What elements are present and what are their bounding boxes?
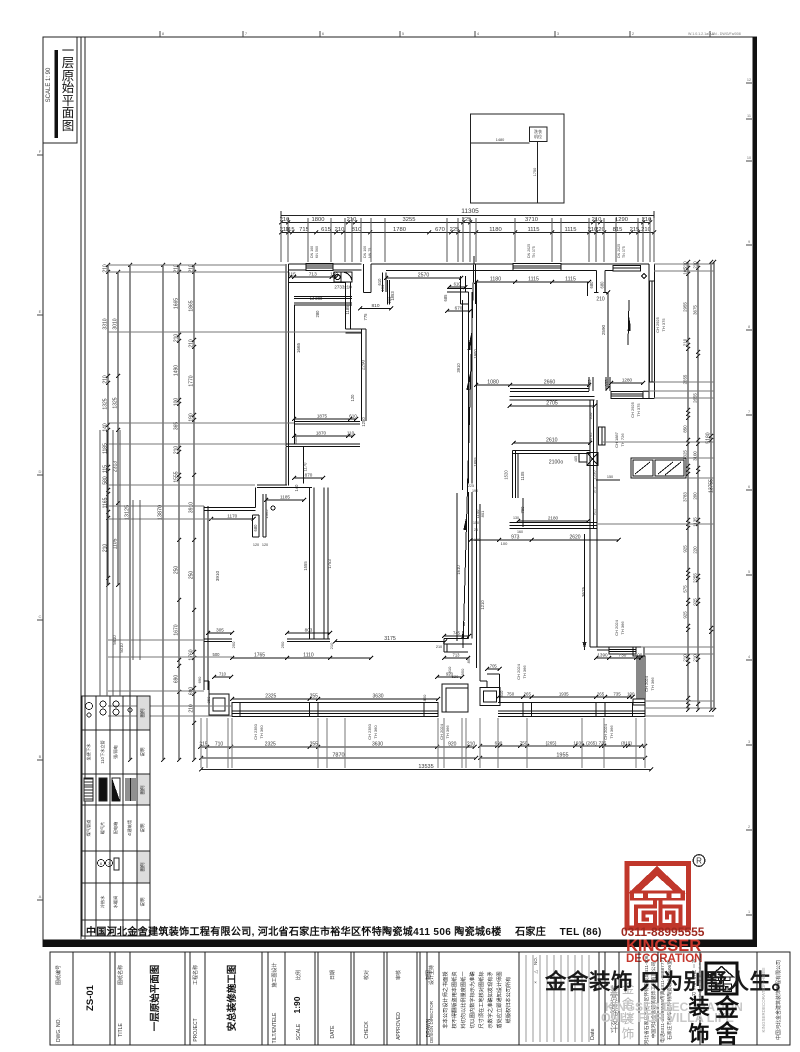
- svg-text:375: 375: [592, 486, 597, 493]
- svg-text:1110: 1110: [303, 653, 314, 659]
- svg-text:始: 始: [62, 81, 75, 95]
- svg-text:1770: 1770: [189, 375, 195, 386]
- svg-text:比例: 比例: [295, 970, 302, 980]
- svg-text:Date: Date: [590, 1028, 596, 1040]
- svg-text:280: 280: [315, 310, 320, 318]
- svg-text:615: 615: [321, 227, 331, 233]
- svg-text:210: 210: [641, 227, 651, 233]
- svg-text:SCALE 1: 90: SCALE 1: 90: [46, 67, 52, 102]
- svg-text:6: 6: [322, 31, 325, 36]
- svg-text:1665: 1665: [296, 342, 301, 353]
- svg-text:11: 11: [747, 114, 751, 118]
- svg-text:饰: 饰: [689, 1022, 710, 1046]
- svg-text:1490: 1490: [174, 365, 180, 376]
- svg-text:3175: 3175: [384, 636, 396, 642]
- svg-text:1760: 1760: [189, 649, 195, 660]
- svg-text:2180: 2180: [548, 516, 559, 521]
- svg-text:735: 735: [613, 692, 621, 697]
- svg-text:A: A: [39, 894, 42, 899]
- svg-text:TH 360: TH 360: [373, 725, 378, 739]
- svg-text:1105: 1105: [520, 471, 525, 481]
- svg-text:7: 7: [108, 861, 111, 866]
- svg-text:250: 250: [189, 571, 195, 580]
- svg-text:1610: 1610: [456, 565, 461, 575]
- svg-text:775: 775: [363, 313, 368, 321]
- svg-text:4: 4: [477, 31, 480, 36]
- svg-text:250: 250: [174, 566, 180, 575]
- svg-text:2325: 2325: [265, 742, 276, 748]
- svg-text:13535: 13535: [418, 764, 433, 770]
- svg-text:210: 210: [174, 264, 180, 273]
- svg-text:2255: 2255: [693, 573, 698, 583]
- svg-text:冷热水: 冷热水: [99, 895, 106, 908]
- svg-text:1170: 1170: [303, 462, 308, 472]
- svg-text:W.1.0.1.2.1a/AAN - DWG/Fa/008: W.1.0.1.2.1a/AAN - DWG/Fa/008: [688, 32, 741, 36]
- svg-text:1870: 1870: [316, 431, 327, 436]
- svg-text:3675: 3675: [693, 305, 698, 315]
- svg-text:715: 715: [299, 227, 309, 233]
- svg-text:210: 210: [329, 642, 334, 649]
- svg-text:1900: 1900: [473, 349, 478, 359]
- svg-text:B: B: [39, 754, 42, 759]
- svg-text:2655: 2655: [683, 374, 688, 384]
- svg-text:中国河北金舍建筑装饰工程有限公司: 中国河北金舍建筑装饰工程有限公司: [775, 960, 782, 1040]
- svg-text:1185: 1185: [345, 305, 350, 315]
- svg-text:210: 210: [693, 654, 698, 662]
- svg-text:13870: 13870: [158, 505, 164, 520]
- svg-text:纸版权归本公司所有: 纸版权归本公司所有: [504, 977, 512, 1024]
- svg-text:115: 115: [288, 272, 296, 278]
- svg-text:TH 360: TH 360: [259, 725, 264, 739]
- svg-text:1935: 1935: [573, 741, 584, 746]
- svg-text:485: 485: [574, 456, 578, 462]
- svg-text:950: 950: [460, 668, 465, 675]
- svg-text:255: 255: [310, 694, 319, 700]
- svg-text:强/弱电: 强/弱电: [112, 744, 119, 759]
- svg-text:图例: 图例: [139, 708, 146, 717]
- svg-text:△: △: [533, 969, 538, 973]
- svg-text:1753: 1753: [327, 559, 332, 569]
- svg-text:配电箱: 配电箱: [112, 822, 119, 835]
- svg-text:1325: 1325: [113, 397, 119, 408]
- svg-text:250: 250: [231, 641, 236, 648]
- svg-text:680: 680: [600, 281, 605, 289]
- svg-text:400: 400: [293, 436, 298, 444]
- svg-text:6: 6: [748, 485, 750, 489]
- svg-text:KINGSERDECORATION-HEBEI: KINGSERDECORATION-HEBEI: [761, 968, 766, 1033]
- svg-text:210: 210: [693, 261, 698, 269]
- svg-text:2: 2: [748, 825, 750, 829]
- svg-text:580: 580: [103, 476, 109, 485]
- svg-text:TILT/ENTELE: TILT/ENTELE: [272, 1012, 278, 1043]
- svg-text:1115: 1115: [528, 277, 539, 283]
- svg-text:ONLY FOR VILLA LIFE: ONLY FOR VILLA LIFE: [601, 1011, 734, 1025]
- svg-text:210: 210: [189, 704, 195, 713]
- svg-text:3100: 3100: [693, 451, 698, 461]
- svg-text:3910: 3910: [215, 570, 220, 581]
- svg-text:日期: 日期: [330, 970, 336, 980]
- svg-text:140: 140: [103, 423, 109, 432]
- svg-text:255: 255: [310, 742, 319, 748]
- svg-text:713: 713: [453, 653, 461, 658]
- svg-text:(265): (265): [586, 741, 597, 746]
- svg-text:100: 100: [501, 541, 508, 546]
- svg-text:1165: 1165: [103, 497, 109, 508]
- svg-text:APPROVED: APPROVED: [396, 1012, 402, 1040]
- svg-text:施工图设计: 施工图设计: [271, 962, 278, 987]
- svg-text:CH 1887: CH 1887: [614, 431, 619, 448]
- svg-text:3625: 3625: [581, 586, 586, 597]
- svg-text:CH 2925: CH 2925: [630, 401, 635, 418]
- svg-text:730: 730: [619, 653, 627, 658]
- svg-text:2313: 2313: [113, 461, 119, 472]
- svg-text:1080: 1080: [487, 380, 499, 386]
- svg-text:735: 735: [599, 741, 607, 746]
- svg-text:150: 150: [473, 521, 479, 525]
- svg-text:DN 100: DN 100: [363, 246, 367, 258]
- svg-text:图例: 图例: [139, 785, 146, 794]
- svg-text:220: 220: [693, 546, 698, 554]
- svg-text:1853: 1853: [390, 291, 395, 301]
- svg-text:803: 803: [305, 628, 313, 633]
- svg-text:210: 210: [335, 227, 345, 233]
- svg-text:713: 713: [309, 272, 317, 278]
- svg-text:3783: 3783: [683, 492, 688, 502]
- svg-text:100: 100: [174, 398, 180, 407]
- svg-text:210: 210: [103, 375, 109, 384]
- svg-text:10: 10: [747, 156, 751, 160]
- svg-text:尺寸须在工地核对图纸标: 尺寸须在工地核对图纸标: [477, 971, 485, 1028]
- svg-text:DN 2025: DN 2025: [617, 244, 621, 258]
- svg-text:810: 810: [352, 227, 362, 233]
- svg-text:校对: 校对: [363, 970, 370, 980]
- svg-text:115: 115: [103, 465, 109, 473]
- svg-text:非本公司设计师之书面授: 非本公司设计师之书面授: [441, 971, 449, 1028]
- svg-text:盾处应立即通知设计师图: 盾处应立即通知设计师图: [495, 971, 503, 1028]
- svg-text:1135: 1135: [693, 517, 698, 527]
- svg-text:305: 305: [216, 628, 224, 633]
- svg-text:1665: 1665: [174, 298, 180, 309]
- svg-text:1955: 1955: [556, 753, 568, 759]
- svg-text:750: 750: [507, 692, 515, 697]
- svg-text:8: 8: [162, 31, 165, 36]
- svg-text:1935: 1935: [559, 692, 569, 697]
- svg-text:切以图内数字标示为准确: 切以图内数字标示为准确: [468, 971, 476, 1028]
- svg-text:7870: 7870: [332, 753, 344, 759]
- svg-text:TH 366: TH 366: [445, 725, 450, 739]
- svg-text:610: 610: [349, 414, 357, 419]
- svg-text:R: R: [696, 857, 702, 866]
- svg-text:TH 366: TH 366: [522, 665, 527, 679]
- svg-text:3630: 3630: [372, 742, 383, 748]
- svg-text:TN 375: TN 375: [622, 246, 626, 258]
- svg-text:1115: 1115: [565, 277, 576, 283]
- svg-text:200: 200: [693, 492, 698, 500]
- svg-text:图纸名称: 图纸名称: [117, 965, 124, 985]
- svg-text:1325: 1325: [103, 398, 109, 409]
- svg-text:215: 215: [199, 742, 208, 748]
- svg-text:DWG. NO.: DWG. NO.: [56, 1018, 62, 1042]
- svg-text:1865: 1865: [189, 300, 195, 311]
- svg-text:×: ×: [533, 981, 538, 984]
- svg-text:925: 925: [693, 598, 698, 606]
- svg-text:925: 925: [683, 545, 688, 553]
- svg-text:120: 120: [350, 394, 355, 402]
- svg-text:973: 973: [511, 535, 520, 541]
- svg-text:2955: 2955: [683, 302, 688, 312]
- svg-text:745: 745: [453, 631, 461, 636]
- svg-text:1750: 1750: [533, 168, 537, 176]
- svg-text:1555: 1555: [174, 471, 180, 482]
- svg-text:DN 2025: DN 2025: [527, 244, 531, 258]
- svg-text:1210: 1210: [480, 600, 485, 610]
- svg-text:DN 160: DN 160: [310, 246, 314, 258]
- svg-text:2: 2: [632, 31, 635, 36]
- svg-text:1250: 1250: [361, 417, 366, 427]
- svg-text:TH 366: TH 366: [609, 725, 614, 739]
- svg-text:安总装修施工图: 安总装修施工图: [226, 965, 238, 1032]
- svg-text:120: 120: [253, 543, 259, 547]
- svg-text:13125: 13125: [125, 505, 131, 520]
- svg-text:4: 4: [748, 655, 750, 659]
- svg-text:2705: 2705: [546, 401, 558, 407]
- svg-text:120: 120: [262, 543, 268, 547]
- svg-text:210: 210: [467, 742, 476, 748]
- svg-text:220: 220: [595, 227, 605, 233]
- svg-text:250: 250: [280, 641, 285, 648]
- svg-text:1780: 1780: [393, 227, 406, 233]
- svg-text:2325: 2325: [265, 694, 276, 700]
- svg-text:9: 9: [748, 240, 750, 244]
- svg-text:1670: 1670: [174, 624, 180, 635]
- svg-text:1480: 1480: [496, 138, 504, 142]
- svg-text:750: 750: [520, 741, 528, 746]
- svg-text:说明: 说明: [139, 747, 146, 756]
- svg-text:示数字之准确如发现有矛: 示数字之准确如发现有矛: [486, 971, 494, 1028]
- svg-text:3910: 3910: [189, 502, 195, 513]
- svg-text:690: 690: [495, 741, 503, 746]
- svg-text:210: 210: [189, 339, 195, 348]
- svg-text:3710: 3710: [525, 217, 538, 223]
- svg-text:1115: 1115: [564, 227, 576, 233]
- svg-text:舍: 舍: [715, 1020, 740, 1048]
- svg-text:3010: 3010: [113, 318, 119, 329]
- svg-text:210: 210: [103, 544, 109, 553]
- svg-text:坐便下水: 坐便下水: [85, 743, 92, 761]
- svg-text:7: 7: [748, 410, 750, 414]
- svg-text:饰: 饰: [622, 1027, 635, 1041]
- svg-text:一层原始平面图: 一层原始平面图: [149, 965, 161, 1032]
- svg-text:210: 210: [683, 338, 688, 346]
- svg-text:110: 110: [347, 431, 355, 436]
- svg-text:7: 7: [245, 31, 248, 36]
- svg-text:670: 670: [455, 306, 463, 311]
- svg-text:210: 210: [174, 446, 180, 455]
- svg-text:1290: 1290: [615, 217, 628, 223]
- svg-text:690: 690: [174, 675, 180, 684]
- svg-text:1185: 1185: [280, 495, 290, 500]
- svg-text:DATE: DATE: [330, 1025, 336, 1039]
- svg-text:1180: 1180: [489, 227, 501, 233]
- svg-text:(265): (265): [546, 741, 557, 746]
- svg-text:CH 2925: CH 2925: [655, 316, 660, 333]
- svg-text:610: 610: [377, 278, 382, 286]
- svg-text:210: 210: [103, 264, 109, 273]
- svg-text:CHECK: CHECK: [364, 1021, 370, 1039]
- svg-text:2620: 2620: [569, 535, 580, 541]
- svg-text:5: 5: [748, 570, 750, 574]
- svg-text:130: 130: [513, 516, 519, 520]
- svg-text:575: 575: [683, 585, 688, 593]
- svg-text:CH 2024: CH 2024: [439, 723, 444, 740]
- svg-text:4t建筑墙: 4t建筑墙: [126, 820, 133, 836]
- svg-text:210: 210: [436, 645, 442, 649]
- svg-text:5: 5: [402, 31, 405, 36]
- svg-text:710: 710: [215, 742, 224, 748]
- svg-text:190: 190: [472, 489, 478, 493]
- svg-text:图纸编号: 图纸编号: [55, 965, 62, 985]
- svg-text:3910: 3910: [456, 363, 461, 373]
- svg-text:210: 210: [347, 217, 357, 223]
- svg-text:审核: 审核: [395, 970, 402, 980]
- svg-text:1855: 1855: [473, 457, 478, 467]
- svg-text:水暖阀: 水暖阀: [112, 896, 119, 909]
- svg-text:150: 150: [607, 475, 613, 479]
- svg-text:105: 105: [683, 267, 688, 275]
- svg-text:8: 8: [748, 325, 750, 329]
- svg-text:1800: 1800: [312, 217, 325, 223]
- svg-text:670: 670: [435, 227, 445, 233]
- svg-text:850: 850: [206, 696, 211, 703]
- svg-text:TITLE: TITLE: [118, 1023, 124, 1037]
- svg-text:705: 705: [490, 664, 498, 669]
- svg-text:910: 910: [499, 690, 504, 697]
- svg-text:C: C: [39, 614, 42, 619]
- svg-text:2660: 2660: [544, 380, 556, 386]
- svg-text:1555: 1555: [303, 561, 308, 571]
- svg-text:925: 925: [592, 508, 597, 515]
- svg-text:煤气管道: 煤气管道: [85, 819, 92, 837]
- svg-text:210: 210: [189, 264, 195, 273]
- svg-text:815: 815: [613, 227, 623, 233]
- svg-text:801: 801: [480, 510, 485, 517]
- svg-text:210: 210: [174, 334, 180, 343]
- svg-text:210: 210: [683, 654, 688, 662]
- svg-text:NN 75: NN 75: [368, 248, 372, 258]
- svg-text:说明: 说明: [139, 823, 146, 832]
- svg-text:210: 210: [596, 297, 605, 303]
- svg-text:150: 150: [380, 284, 385, 291]
- svg-text:1185: 1185: [103, 443, 109, 454]
- svg-text:11305: 11305: [461, 208, 479, 215]
- svg-text:CH 2024: CH 2024: [516, 663, 521, 680]
- svg-text:1115: 1115: [527, 227, 539, 233]
- svg-text:1:90: 1:90: [292, 996, 302, 1013]
- svg-text:6: 6: [100, 861, 103, 866]
- svg-text:权不得翻版盗用本图纸资: 权不得翻版盗用本图纸资: [450, 971, 458, 1028]
- svg-text:1105: 1105: [113, 538, 119, 549]
- svg-text:料切勿以比例量度图纸一: 料切勿以比例量度图纸一: [459, 971, 467, 1028]
- svg-text:265: 265: [524, 692, 532, 697]
- svg-text:3630: 3630: [372, 694, 383, 700]
- svg-text:1170: 1170: [227, 514, 237, 519]
- svg-text:1280: 1280: [622, 378, 633, 383]
- svg-text:2100o: 2100o: [549, 460, 564, 466]
- svg-text:金舍装饰 只为别墅人生。: 金舍装饰 只为别墅人生。: [544, 969, 793, 994]
- svg-text:100: 100: [627, 692, 635, 697]
- svg-text:1365: 1365: [264, 509, 269, 519]
- svg-text:5610: 5610: [112, 635, 117, 645]
- svg-text:13755: 13755: [709, 479, 715, 493]
- svg-text:计: 计: [610, 1024, 618, 1034]
- svg-text:3: 3: [748, 740, 750, 744]
- svg-text:面: 面: [62, 106, 75, 120]
- svg-text:CH 2350: CH 2350: [253, 723, 258, 740]
- svg-text:910: 910: [447, 666, 452, 673]
- svg-text:(810): (810): [621, 741, 632, 746]
- svg-text:710: 710: [219, 672, 227, 677]
- svg-text:5010: 5010: [119, 643, 124, 653]
- svg-text:机位: 机位: [534, 133, 542, 139]
- svg-text:SCALE: SCALE: [296, 1023, 302, 1040]
- svg-text:850: 850: [422, 694, 427, 701]
- svg-text:1530: 1530: [592, 470, 597, 480]
- svg-text:TH 375: TH 375: [636, 403, 641, 417]
- svg-text:225: 225: [468, 484, 474, 488]
- svg-text:DESIGN DIRECTOR: DESIGN DIRECTOR: [429, 1000, 434, 1043]
- svg-text:1180: 1180: [490, 277, 501, 283]
- svg-text:655: 655: [587, 379, 592, 387]
- svg-text:110下水立管: 110下水立管: [99, 740, 106, 763]
- svg-text:3255: 3255: [403, 217, 416, 223]
- svg-text:1520: 1520: [504, 470, 509, 480]
- svg-text:F: F: [39, 149, 42, 154]
- svg-text:金: 金: [714, 994, 740, 1022]
- svg-text:2590: 2590: [601, 324, 606, 335]
- svg-text:PROJECT: PROJECT: [193, 1018, 199, 1041]
- svg-text:CH 2350: CH 2350: [367, 723, 372, 740]
- svg-text:680: 680: [253, 524, 258, 532]
- svg-text:图: 图: [62, 119, 75, 133]
- svg-text:层: 层: [62, 56, 75, 70]
- svg-text:115: 115: [285, 227, 294, 233]
- svg-text:685: 685: [443, 294, 448, 302]
- svg-text:1: 1: [748, 910, 750, 914]
- svg-text:D: D: [39, 469, 42, 474]
- svg-text:870: 870: [305, 473, 313, 478]
- svg-text:190: 190: [189, 413, 195, 422]
- svg-text:3310: 3310: [103, 318, 109, 329]
- svg-text:920: 920: [448, 742, 457, 748]
- svg-text:装: 装: [689, 996, 710, 1019]
- svg-text:655: 655: [604, 379, 609, 387]
- svg-text:TH 375: TH 375: [661, 318, 666, 332]
- svg-text:1390: 1390: [597, 653, 608, 658]
- svg-text:中国河北金舍建筑装饰工程有限公司, 河北省石家庄市裕华区怀特: 中国河北金舍建筑装饰工程有限公司, 河北省石家庄市裕华区怀特陶瓷城411 506…: [86, 925, 602, 938]
- svg-text:TH 726: TH 726: [620, 433, 625, 447]
- svg-text:12: 12: [747, 78, 751, 82]
- svg-text:设计主持: 设计主持: [428, 965, 435, 985]
- svg-text:CH 2024: CH 2024: [644, 675, 649, 692]
- svg-text:CH 2024: CH 2024: [614, 619, 619, 636]
- svg-text:2570: 2570: [418, 273, 430, 279]
- svg-text:NO.: NO.: [533, 957, 538, 965]
- svg-text:ZS-01: ZS-01: [85, 984, 96, 1011]
- svg-text:680: 680: [589, 281, 594, 289]
- svg-text:1765: 1765: [254, 653, 265, 659]
- svg-text:690: 690: [197, 676, 202, 683]
- svg-text:图例: 图例: [139, 862, 146, 871]
